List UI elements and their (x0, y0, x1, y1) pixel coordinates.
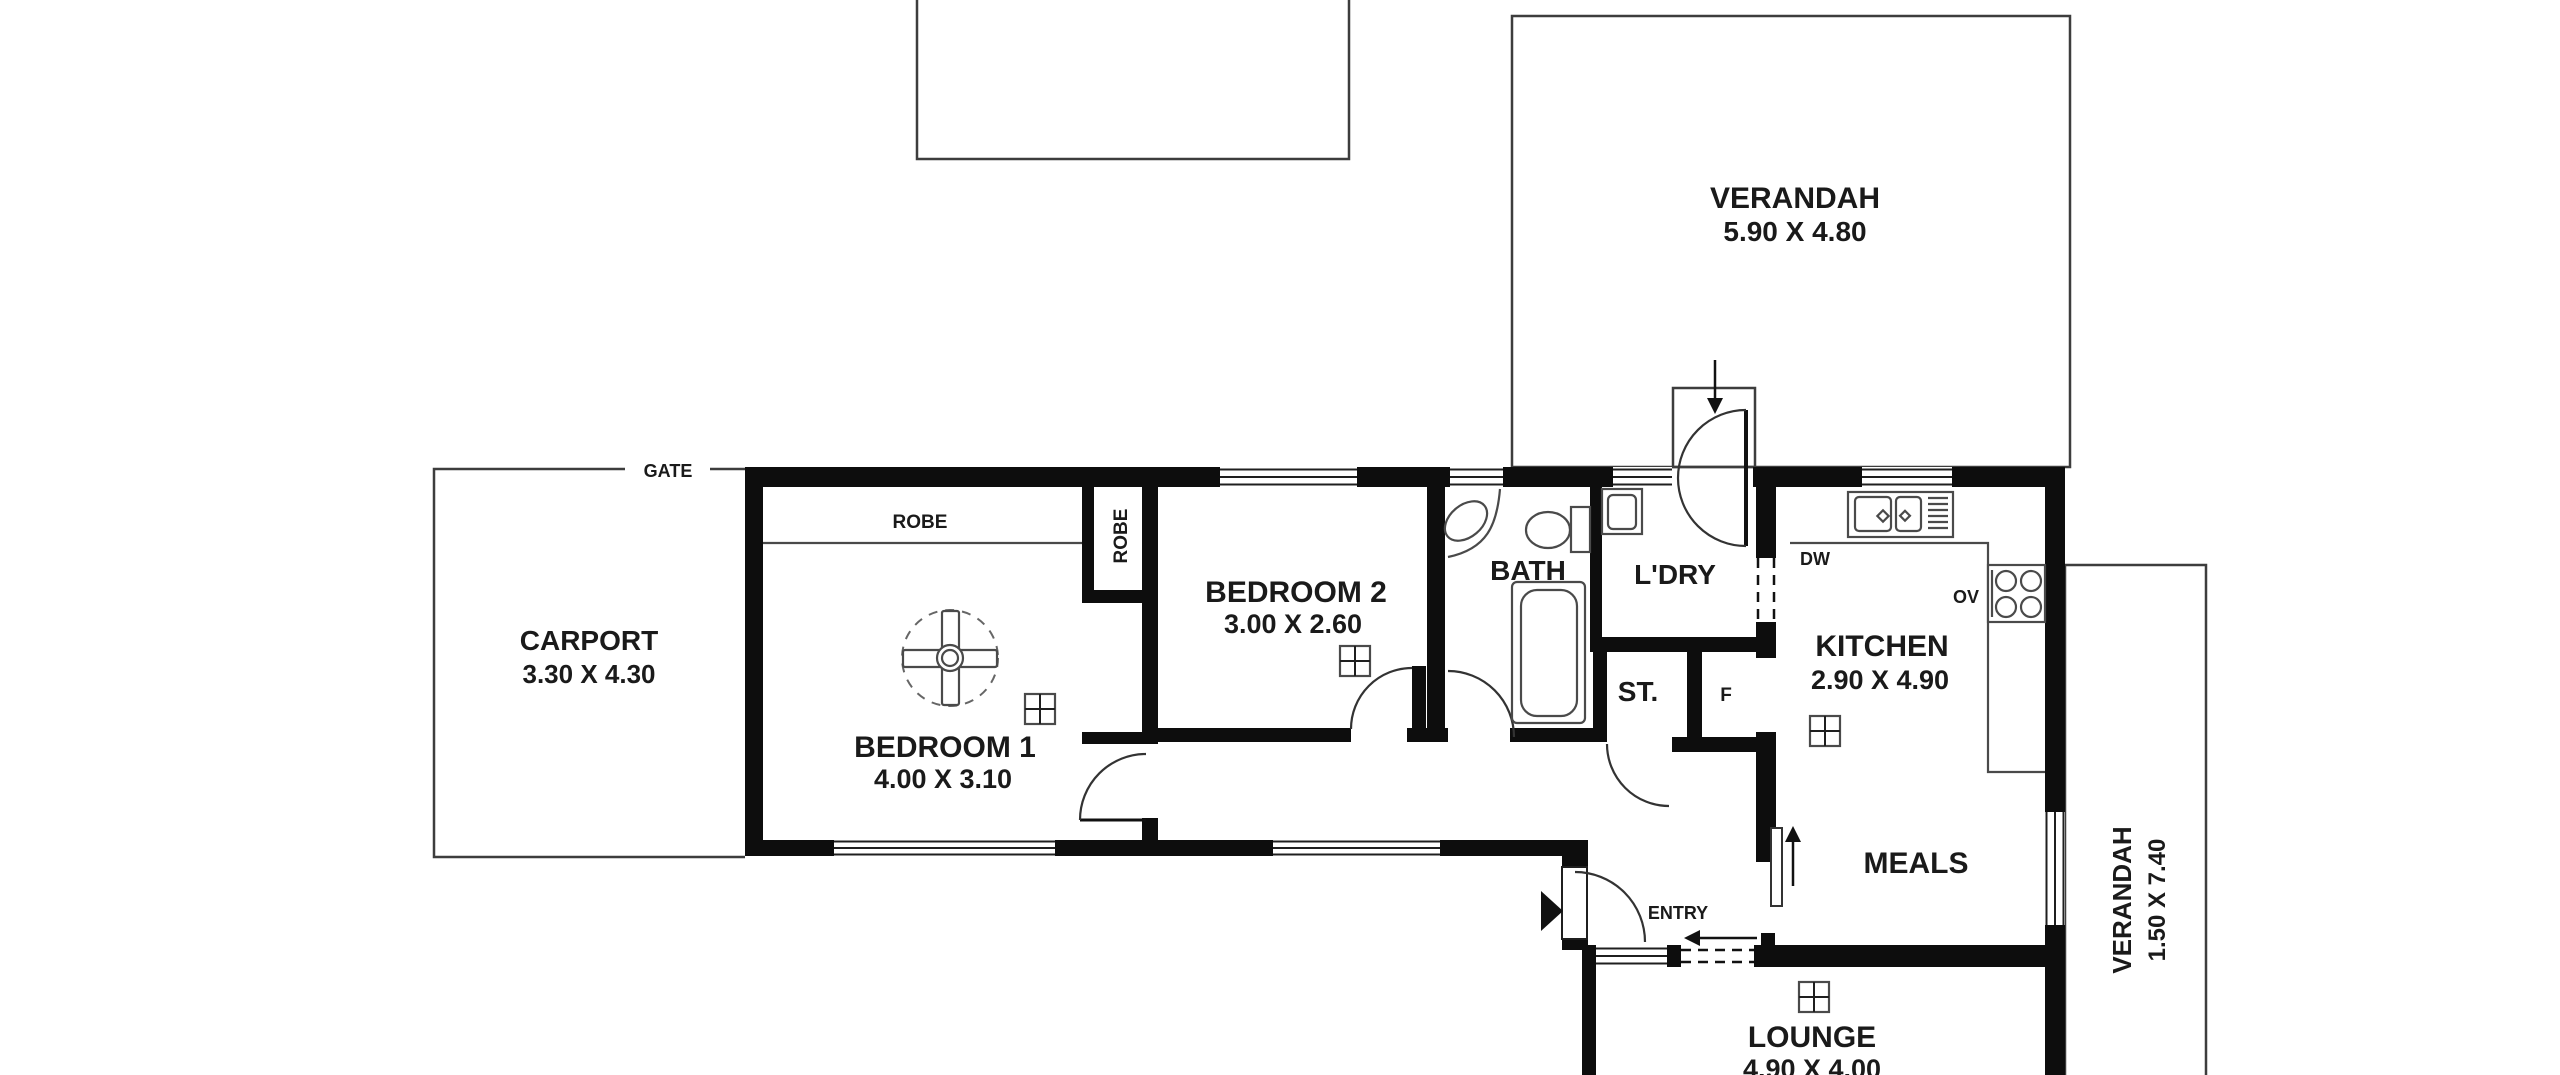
opening-entry-lounge-dashed (1681, 950, 1754, 962)
room-label-carport: CARPORT (520, 625, 658, 656)
room-label-store: ST. (1618, 676, 1658, 707)
verandah-right-outline (2065, 565, 2206, 1075)
window-laundry-north (1613, 467, 1672, 487)
door-verandah-laundry (1678, 410, 1746, 546)
door-store (1607, 744, 1669, 806)
labels: VERANDAH 5.90 X 4.80 GATE CARPORT 3.30 X… (520, 182, 2171, 1075)
room-label-laundry: L'DRY (1634, 559, 1716, 590)
toilet-icon (1526, 507, 1590, 552)
dishwasher-label: DW (1800, 549, 1830, 569)
floorplan-drawing: VERANDAH 5.90 X 4.80 GATE CARPORT 3.30 X… (0, 0, 2560, 1075)
door-leaf (1412, 666, 1426, 732)
room-dims-bedroom1: 4.00 X 3.10 (874, 764, 1012, 794)
room-dims-lounge: 4.90 X 4.00 (1743, 1054, 1881, 1075)
door-front-entry (1541, 867, 1645, 942)
bathtub-icon (1512, 582, 1585, 723)
window-meals-east (2045, 812, 2065, 925)
stove-icon (1988, 565, 2045, 622)
opening-kitchen-laundry-dashed (1758, 558, 1774, 622)
window-kitchen-north (1862, 467, 1952, 487)
floorplan-canvas: VERANDAH 5.90 X 4.80 GATE CARPORT 3.30 X… (0, 0, 2560, 1075)
fridge-label: F (1720, 685, 1732, 706)
robe-label-bedroom2: ROBE (1111, 509, 1132, 564)
room-label-bedroom2: BEDROOM 2 (1205, 576, 1387, 609)
vent-icon-kitchen (1810, 716, 1840, 746)
gate-label: GATE (644, 461, 693, 481)
window-bedroom1-south (834, 840, 1055, 856)
room-label-verandah-right: VERANDAH (2107, 826, 2137, 973)
window-bath-north (1450, 467, 1503, 487)
entry-label: ENTRY (1648, 903, 1708, 923)
laundry-trough-icon (1602, 489, 1642, 534)
room-dims-verandah-top: 5.90 X 4.80 (1723, 216, 1866, 247)
sliding-door-meals (1771, 828, 1782, 906)
room-label-meals: MEALS (1864, 847, 1969, 880)
room-dims-bedroom2: 3.00 X 2.60 (1224, 609, 1362, 639)
room-label-bedroom1: BEDROOM 1 (854, 731, 1036, 764)
slider-panel (1771, 828, 1782, 906)
ceiling-fan-icon (902, 610, 998, 706)
kitchen-sink-icon (1848, 492, 1953, 537)
window-hall-south (1273, 840, 1440, 856)
arrow-meals-icon (1785, 826, 1801, 886)
vent-icon-bedroom1 (1025, 694, 1055, 724)
room-label-bath: BATH (1490, 555, 1566, 586)
window-bedroom2-north (1220, 467, 1357, 487)
room-label-kitchen: KITCHEN (1815, 630, 1948, 663)
basin-icon (1437, 489, 1500, 557)
windows (834, 467, 2065, 965)
room-label-lounge: LOUNGE (1748, 1021, 1876, 1054)
robe-label-bedroom1: ROBE (893, 512, 948, 533)
arrow-entry-icon (1684, 930, 1757, 946)
door-bedroom1 (1080, 754, 1146, 820)
door-bath (1448, 671, 1514, 737)
shed-outline (917, 0, 1349, 159)
room-label-verandah-top: VERANDAH (1710, 182, 1880, 215)
room-dims-carport: 3.30 X 4.30 (523, 659, 656, 689)
oven-label: OV (1953, 587, 1979, 607)
window-entry-sidelight (1596, 947, 1667, 965)
room-dims-verandah-right: 1.50 X 7.40 (2144, 839, 2171, 962)
vent-icon-bedroom2 (1340, 646, 1370, 676)
vent-icon-lounge (1799, 982, 1829, 1012)
room-dims-kitchen: 2.90 X 4.90 (1811, 665, 1949, 695)
door-leaf (1562, 867, 1587, 939)
entry-direction-icon (1541, 891, 1563, 931)
